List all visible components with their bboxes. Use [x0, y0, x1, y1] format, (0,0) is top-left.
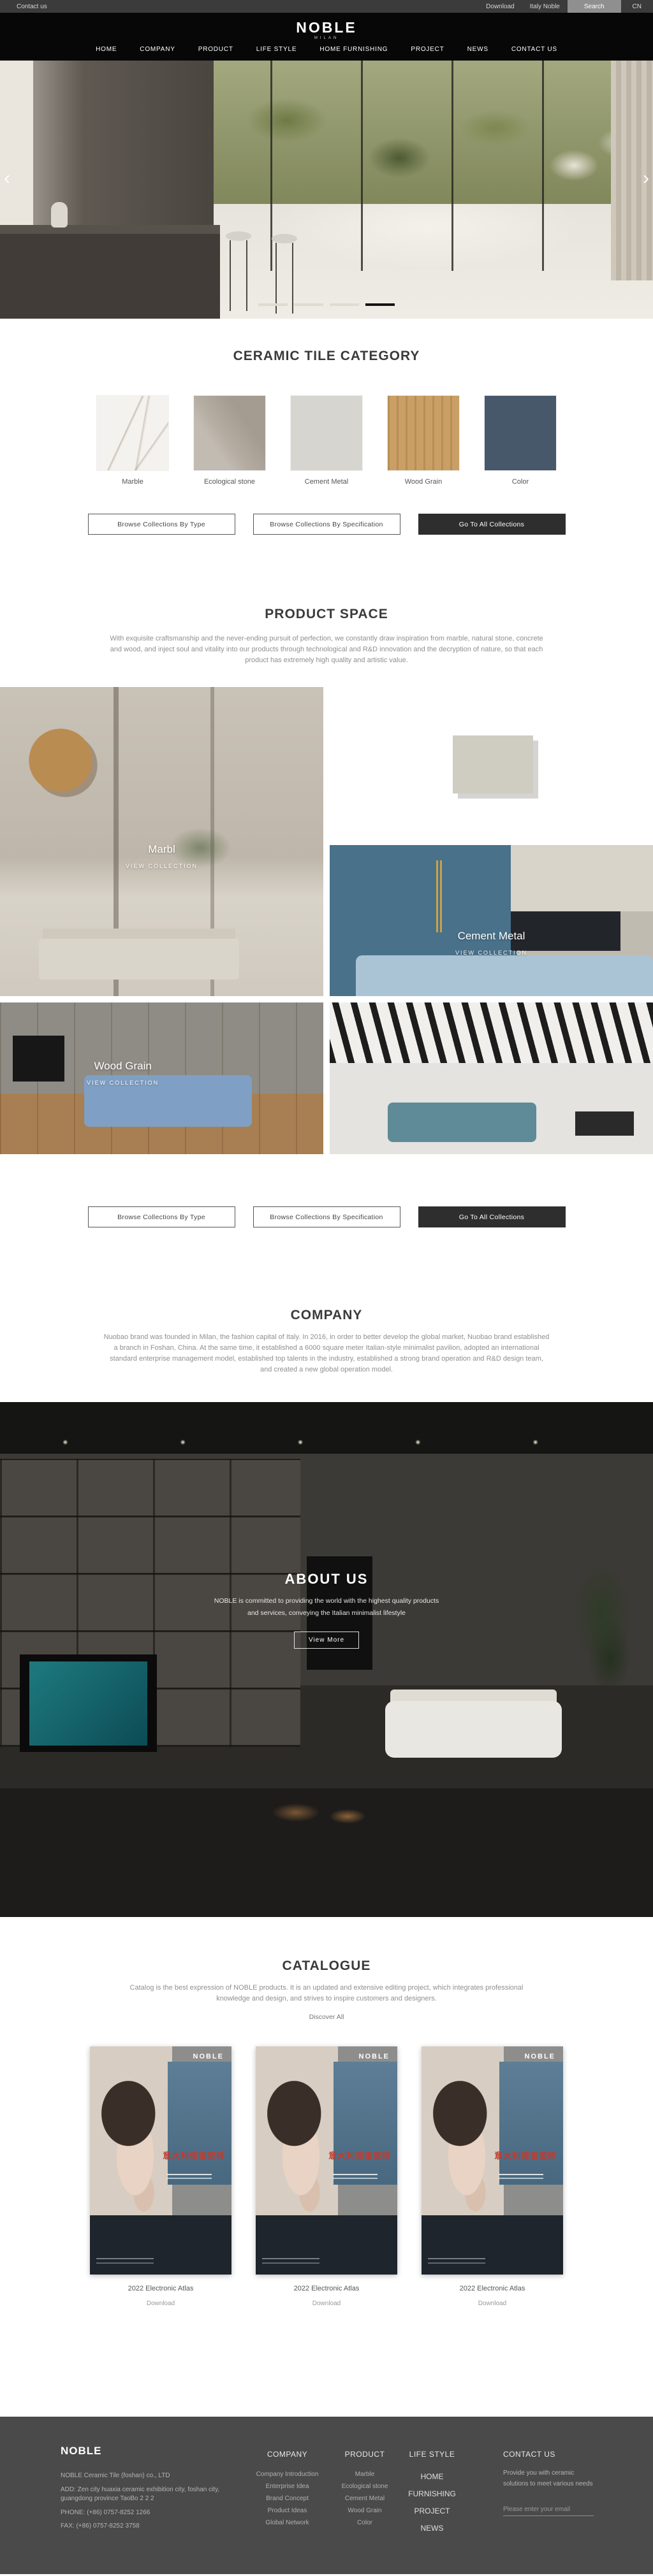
striped-ceiling: [330, 1002, 653, 1063]
footer-column-title[interactable]: LIFE STYLE: [399, 2450, 466, 2459]
footer-link-ecological-stone[interactable]: Ecological stone: [336, 2480, 393, 2493]
discover-all-link[interactable]: Discover All: [288, 2013, 365, 2021]
search-button[interactable]: Search: [568, 0, 621, 13]
nav-home-furnishing[interactable]: HOME FURNISHING: [319, 46, 388, 53]
footer-link-project[interactable]: PROJECT: [399, 2503, 466, 2520]
wood-grain-swatch-image: [388, 396, 459, 470]
slider-dash-3[interactable]: [330, 303, 359, 306]
top-utility-bar: Contact us Download Italy Noble Search C…: [0, 0, 653, 13]
space-image-cement-metal[interactable]: Cement Metal VIEW COLLECTION: [330, 845, 653, 996]
footer-column-title: COMPANY: [244, 2450, 330, 2459]
footer-column-product: PRODUCT Marble Ecological stone Cement M…: [336, 2450, 393, 2529]
striped-room-sofa: [388, 1103, 536, 1142]
go-to-all-collections-button[interactable]: Go To All Collections: [418, 1206, 566, 1227]
browse-by-type-button[interactable]: Browse Collections By Type: [88, 514, 235, 535]
product-space-description: With exquisite craftsmanship and the nev…: [103, 633, 550, 666]
footer-brand: NOBLE: [61, 2445, 102, 2457]
footer-link-home-furnishing[interactable]: HOME FURNISHING: [399, 2468, 466, 2503]
footer-column-company: COMPANY Company Introduction Enterprise …: [244, 2450, 330, 2529]
cover-brand-text: NOBLE: [525, 2053, 556, 2060]
company-description: Nuobao brand was founded in Milan, the f…: [103, 1332, 550, 1375]
footer-link-wood-grain[interactable]: Wood Grain: [336, 2505, 393, 2517]
about-us-title: ABOUT US: [0, 1571, 653, 1588]
nav-project[interactable]: PROJECT: [411, 46, 444, 53]
atlas-title: 2022 Electronic Atlas: [90, 2285, 231, 2292]
nav-home[interactable]: HOME: [96, 46, 117, 53]
footer-link-news[interactable]: NEWS: [399, 2520, 466, 2537]
terrace-concrete-block: [453, 735, 534, 793]
slider-dash-1[interactable]: [258, 303, 288, 306]
footer-link-marble[interactable]: Marble: [336, 2468, 393, 2480]
site-header: NOBLE MILAN HOME COMPANY PRODUCT LIFE ST…: [0, 13, 653, 61]
ecological-stone-swatch-image: [194, 396, 265, 470]
space-image-terrace[interactable]: [330, 687, 653, 839]
marble-swatch-image: [97, 396, 168, 470]
overlay-name: Wood Grain: [26, 1060, 220, 1073]
main-nav: HOME COMPANY PRODUCT LIFE STYLE HOME FUR…: [96, 46, 557, 53]
cover-brand-text: NOBLE: [359, 2053, 390, 2060]
cover-model-photo: [258, 2074, 343, 2215]
cover-chinese-title: 意大利诺宝瓷砖: [494, 2149, 557, 2161]
logo[interactable]: NOBLE: [296, 20, 357, 35]
overlay-name: Marbl: [0, 843, 323, 856]
catalogue-cover-1[interactable]: NOBLE 意大利诺宝瓷砖: [90, 2046, 231, 2275]
footer-contact-text: Provide you with ceramic solutions to me…: [503, 2468, 599, 2489]
nav-life-style[interactable]: LIFE STYLE: [256, 46, 297, 53]
footer-column-title: CONTACT US: [503, 2450, 599, 2459]
grid-left-column: Marbl VIEW COLLECTION Wood Grain VIEW CO…: [0, 687, 323, 1154]
cover-chinese-title: 意大利诺宝瓷砖: [162, 2149, 226, 2161]
hero-bar-stool: [224, 231, 253, 311]
catalogue-title: CATALOGUE: [0, 1957, 653, 1975]
site-footer: NOBLE NOBLE Ceramic Tile (foshan) co., L…: [0, 2417, 653, 2574]
wood-grain-overlay: Wood Grain VIEW COLLECTION: [26, 1060, 220, 1086]
category-tile-marble[interactable]: Marble: [97, 396, 168, 486]
product-space-grid: Marbl VIEW COLLECTION Wood Grain VIEW CO…: [0, 687, 653, 1154]
cover-caption-lines: [499, 2174, 543, 2183]
atlas-download-link[interactable]: Download: [478, 2300, 506, 2307]
catalogue-label-2: 2022 Electronic Atlas Download: [256, 2285, 397, 2308]
category-tile-cement-metal[interactable]: Cement Metal: [291, 396, 362, 486]
category-tile-ecological-stone[interactable]: Ecological stone: [194, 396, 265, 486]
category-tile-wood-grain[interactable]: Wood Grain: [388, 396, 459, 486]
cover-model-photo: [424, 2074, 509, 2215]
cover-footer-lines: [428, 2258, 485, 2268]
catalogue-labels-row: 2022 Electronic Atlas Download 2022 Elec…: [0, 2285, 653, 2308]
blueroom-floor-lamp: [436, 860, 438, 933]
catalogue-cover-3[interactable]: NOBLE 意大利诺宝瓷砖: [422, 2046, 563, 2275]
email-input[interactable]: [503, 2503, 594, 2516]
cement-metal-overlay: Cement Metal VIEW COLLECTION: [330, 930, 653, 956]
slider-prev-icon[interactable]: ‹: [4, 169, 10, 188]
footer-column-title: PRODUCT: [336, 2450, 393, 2459]
category-tile-label: Cement Metal: [291, 478, 362, 486]
category-tile-label: Color: [485, 478, 556, 486]
nav-product[interactable]: PRODUCT: [198, 46, 233, 53]
footer-column-contact-us: CONTACT US Provide you with ceramic solu…: [503, 2450, 599, 2516]
slider-dash-4-active[interactable]: [365, 303, 395, 306]
ceiling-spotlights: [0, 1433, 653, 1452]
topbar-right-group: Download Italy Noble Search CN: [478, 0, 653, 13]
footer-link-color[interactable]: Color: [336, 2517, 393, 2529]
lobby-sofa: [39, 939, 239, 980]
overlay-name: Cement Metal: [330, 930, 653, 943]
catalogue-cover-2[interactable]: NOBLE 意大利诺宝瓷砖: [256, 2046, 397, 2275]
cement-metal-swatch-image: [291, 396, 362, 470]
nav-company[interactable]: COMPANY: [140, 46, 175, 53]
footer-link-company-introduction[interactable]: Company Introduction: [244, 2468, 330, 2480]
about-us-line1: NOBLE is committed to providing the worl…: [0, 1596, 653, 1607]
striped-room-console: [575, 1111, 633, 1136]
company-title: COMPANY: [0, 1306, 653, 1324]
slider-next-icon[interactable]: ›: [643, 169, 649, 188]
atlas-title: 2022 Electronic Atlas: [422, 2285, 563, 2292]
cover-brand-text: NOBLE: [193, 2053, 224, 2060]
browse-by-type-button[interactable]: Browse Collections By Type: [88, 1206, 235, 1227]
grid-right-column: Cement Metal VIEW COLLECTION: [330, 687, 653, 1154]
category-tile-label: Ecological stone: [194, 478, 265, 486]
footer-address: ADD: Zen city huaxia ceramic exhibition …: [61, 2486, 223, 2504]
cover-caption-lines: [333, 2174, 378, 2183]
catalogue-description: Catalog is the best expression of NOBLE …: [122, 1983, 531, 2004]
view-collection-link[interactable]: VIEW COLLECTION: [330, 950, 653, 956]
view-collection-link[interactable]: VIEW COLLECTION: [0, 863, 323, 869]
cover-footer-lines: [96, 2258, 154, 2268]
footer-fax: FAX: (+86) 0757-8252 3758: [61, 2522, 223, 2531]
download-link[interactable]: Download: [478, 3, 522, 10]
footer-company-name: NOBLE Ceramic Tile (foshan) co., LTD: [61, 2471, 223, 2481]
about-us-banner: ABOUT US NOBLE is committed to providing…: [0, 1402, 653, 1917]
footer-column-life-style: LIFE STYLE HOME FURNISHING PROJECT NEWS: [399, 2450, 466, 2537]
cover-chinese-title: 意大利诺宝瓷砖: [328, 2149, 392, 2161]
footer-phone: PHONE: (+86) 0757-8252 1266: [61, 2508, 223, 2518]
cover-caption-lines: [167, 2174, 212, 2183]
cover-model-photo: [92, 2074, 177, 2215]
language-toggle-cn[interactable]: CN: [621, 3, 653, 10]
italy-noble-link[interactable]: Italy Noble: [522, 3, 568, 10]
page: Contact us Download Italy Noble Search C…: [0, 0, 653, 2576]
go-to-all-collections-button[interactable]: Go To All Collections: [418, 514, 566, 535]
atlas-download-link[interactable]: Download: [312, 2300, 341, 2307]
showroom-tv-screen: [20, 1654, 157, 1753]
category-title: CERAMIC TILE CATEGORY: [0, 347, 653, 365]
marble-overlay: Marbl VIEW COLLECTION: [0, 843, 323, 869]
hero-bar-stool: [270, 234, 298, 314]
category-tile-color[interactable]: Color: [485, 396, 556, 486]
category-tiles: Marble Ecological stone Cement Metal Woo…: [0, 396, 653, 486]
footer-company-info: NOBLE Ceramic Tile (foshan) co., LTD ADD…: [61, 2471, 223, 2536]
view-collection-link[interactable]: VIEW COLLECTION: [26, 1080, 220, 1086]
space-image-marble[interactable]: Marbl VIEW COLLECTION: [0, 687, 323, 996]
showroom-sofa: [385, 1701, 561, 1758]
company-section: COMPANY Nuobao brand was founded in Mila…: [0, 1306, 653, 1375]
slider-pagination: [0, 303, 653, 306]
catalogue-label-3: 2022 Electronic Atlas Download: [422, 2285, 563, 2308]
footer-link-product-ideas[interactable]: Product Ideas: [244, 2505, 330, 2517]
browse-by-specification-button[interactable]: Browse Collections By Specification: [253, 1206, 400, 1227]
category-tile-label: Marble: [97, 478, 168, 486]
blueroom-beam: [511, 845, 653, 911]
about-view-more-button[interactable]: View More: [294, 1632, 359, 1649]
product-space-section: PRODUCT SPACE With exquisite craftsmansh…: [0, 605, 653, 1227]
category-tile-label: Wood Grain: [388, 478, 459, 486]
catalogue-section: CATALOGUE Catalog is the best expression…: [0, 1957, 653, 2308]
hero-slider: ‹ ›: [0, 61, 653, 319]
product-space-title: PRODUCT SPACE: [0, 605, 653, 623]
slider-dash-2[interactable]: [294, 303, 323, 306]
catalogue-label-1: 2022 Electronic Atlas Download: [90, 2285, 231, 2308]
cover-footer-lines: [262, 2258, 319, 2268]
category-section: CERAMIC TILE CATEGORY Marble Ecological …: [0, 319, 653, 535]
atlas-download-link[interactable]: Download: [147, 2300, 175, 2307]
showroom-coffee-tables: [261, 1793, 376, 1832]
category-buttons-row: Browse Collections By Type Browse Collec…: [0, 514, 653, 535]
blueroom-sofa: [356, 955, 653, 996]
atlas-title: 2022 Electronic Atlas: [256, 2285, 397, 2292]
color-swatch-image: [485, 396, 556, 470]
footer-link-cement-metal[interactable]: Cement Metal: [336, 2493, 393, 2505]
browse-by-specification-button[interactable]: Browse Collections By Specification: [253, 514, 400, 535]
logo-tagline: MILAN: [314, 36, 339, 40]
about-us-line2: and services, conveying the Italian mini…: [0, 1609, 653, 1619]
footer-link-global-network[interactable]: Global Network: [244, 2517, 330, 2529]
catalogue-covers-row: NOBLE 意大利诺宝瓷砖 NOBLE 意大利诺宝瓷砖 NOBLE 意大利诺宝瓷…: [0, 2046, 653, 2275]
space-image-striped-room[interactable]: [330, 1002, 653, 1154]
footer-link-brand-concept[interactable]: Brand Concept: [244, 2493, 330, 2505]
hero-vase: [51, 202, 68, 228]
nav-contact-us[interactable]: CONTACT US: [511, 46, 557, 53]
contact-us-link[interactable]: Contact us: [0, 3, 47, 10]
nav-news[interactable]: NEWS: [467, 46, 488, 53]
about-us-text-block: ABOUT US NOBLE is committed to providing…: [0, 1571, 653, 1649]
product-buttons-row: Browse Collections By Type Browse Collec…: [0, 1206, 653, 1227]
footer-link-enterprise-idea[interactable]: Enterprise Idea: [244, 2480, 330, 2493]
space-image-wood-grain[interactable]: Wood Grain VIEW COLLECTION: [0, 1002, 323, 1154]
